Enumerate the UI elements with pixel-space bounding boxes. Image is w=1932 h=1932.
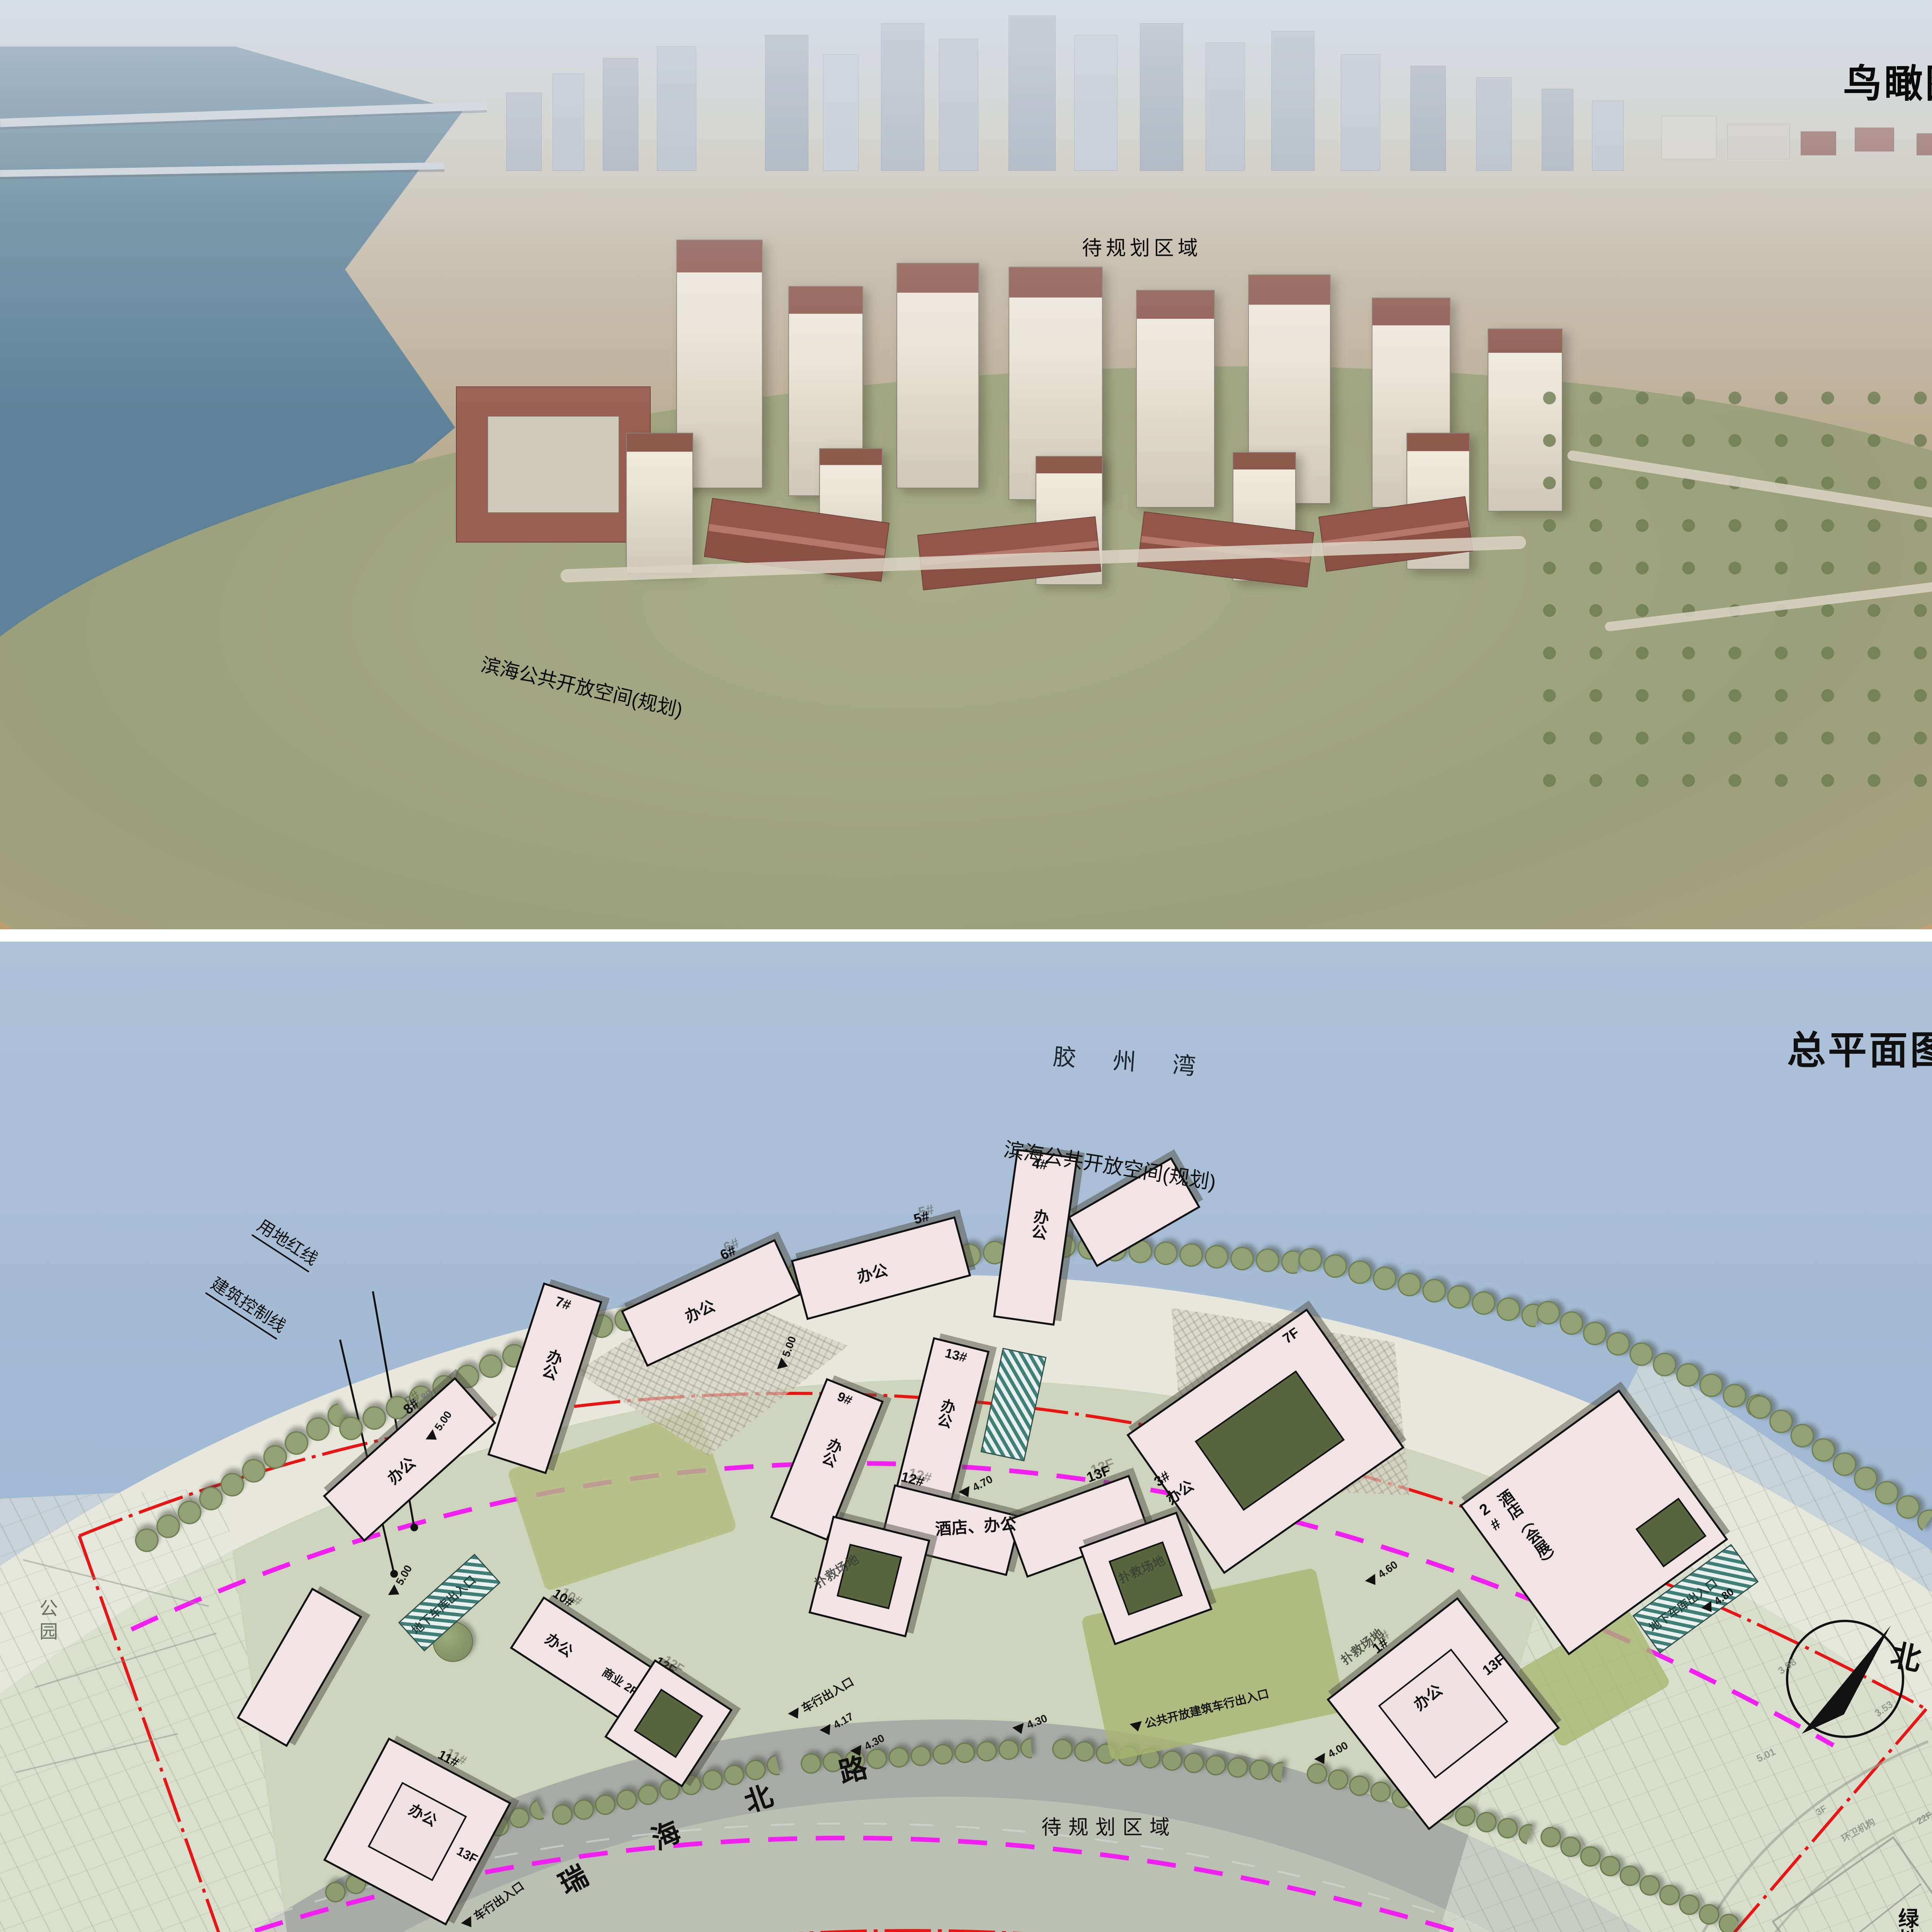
presentation-board: { "aerial": { "title": "鸟瞰图", "pending_a… — [0, 0, 1932, 1932]
aerial-view-panel: 鸟瞰图 待规划区域 滨海公共开放空间(规划) — [0, 0, 1932, 929]
estate-label: 绿地阅海府邸 — [1891, 1908, 1922, 1932]
panel-separator — [0, 929, 1932, 942]
aerial-pending-area-label: 待规划区域 — [1082, 232, 1202, 261]
survey-lines — [15, 1560, 216, 1772]
north-compass-needle — [1802, 1626, 1891, 1734]
plan-title: 总平面图 — [1787, 1019, 1932, 1075]
entry-arrow-icon — [1130, 1721, 1144, 1733]
aerial-title: 鸟瞰图 — [1843, 52, 1932, 108]
pending-area-label: 待规划区域 — [1041, 1811, 1177, 1840]
park-label: 公园 — [33, 1599, 60, 1645]
red-boundary-south — [253, 1930, 1629, 1932]
north-compass-circle — [1787, 1621, 1903, 1737]
atmospheric-haze — [0, 0, 1932, 929]
site-plan-panel: 地下车库出入口 地下车库出入口 8# 办公 7# 办公 6# 办公 5# 办公 … — [0, 942, 1932, 1932]
